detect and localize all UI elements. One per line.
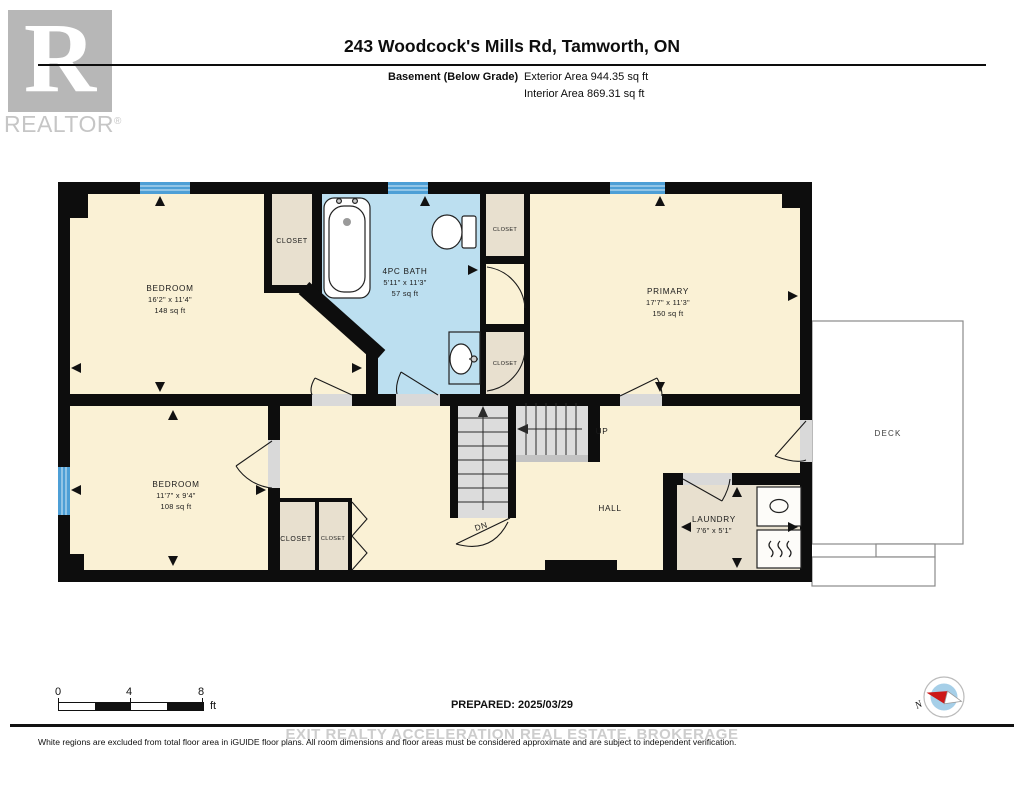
scale-tick-4: 4: [126, 686, 132, 698]
bedroom2-dims: 11'7" x 9'4": [156, 491, 196, 500]
primary-name: PRIMARY: [647, 287, 689, 296]
compass: N: [912, 677, 964, 717]
bath-name: 4PC BATH: [382, 267, 427, 276]
primary-area: 150 sq ft: [652, 309, 683, 318]
closet-bedroom1-label: CLOSET: [276, 238, 308, 245]
closet-bath-upper-label: CLOSET: [493, 227, 517, 233]
closet-hall-left-label: CLOSET: [280, 536, 312, 543]
bathtub: [324, 198, 370, 298]
closet-bath-lower-label: CLOSET: [493, 361, 517, 367]
bedroom2-area: 108 sq ft: [160, 502, 191, 511]
closet-hall-right-label: CLOSET: [321, 536, 345, 542]
bedroom1-dims: 16'2" x 11'4": [148, 295, 192, 304]
deck-outline: [812, 321, 963, 586]
laundry-name: LAUNDRY: [692, 515, 736, 524]
hall-label: HALL: [598, 504, 621, 513]
primary-dims: 17'7" x 11'3": [646, 298, 690, 307]
bedroom2-name: BEDROOM: [152, 480, 199, 489]
floorplan-drawing: BEDROOM 16'2" x 11'4" 148 sq ft 4PC BATH…: [0, 0, 1024, 791]
bedroom1-area: 148 sq ft: [154, 306, 185, 315]
deck-label: DECK: [874, 429, 901, 438]
bedroom1-name: BEDROOM: [146, 284, 193, 293]
floorplan-page: R REALTOR® 243 Woodcock's Mills Rd, Tamw…: [0, 0, 1024, 791]
bath-area: 57 sq ft: [392, 289, 419, 298]
washer: [757, 487, 801, 526]
toilet: [432, 215, 476, 249]
disclaimer-text: White regions are excluded from total fl…: [38, 737, 998, 747]
dryer: [757, 530, 801, 568]
scale-tick-8: 8: [198, 686, 204, 698]
bath-dims: 5'11" x 11'3": [383, 278, 426, 287]
laundry-dims: 7'6" x 5'1": [696, 526, 732, 535]
scale-tick-0: 0: [55, 686, 61, 698]
prepared-date: PREPARED: 2025/03/29: [0, 699, 1024, 711]
stairs-up-label: UP: [596, 427, 609, 436]
